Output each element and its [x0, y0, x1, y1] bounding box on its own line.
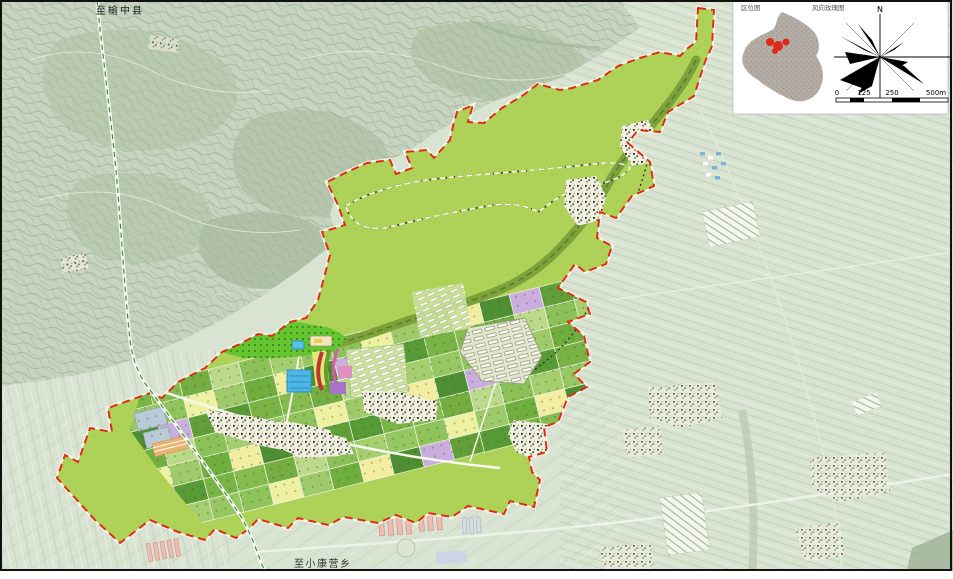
windrose-title: 风向玫瑰图: [812, 3, 845, 12]
greenhouse-block: [346, 344, 409, 398]
scale-tick-500: 500m: [926, 89, 946, 97]
shed-rows-c: [462, 517, 481, 534]
map-canvas: 至榆中县 至小康营乡 区位图 风向玫瑰图 N: [0, 0, 953, 579]
greenhouse-block: [412, 283, 471, 337]
inset-panel: 区位图 风向玫瑰图 N: [733, 1, 950, 114]
north-label: N: [877, 5, 883, 14]
planning-map: 至榆中县 至小康营乡 区位图 风向玫瑰图 N: [0, 0, 953, 579]
location-map-title: 区位图: [741, 3, 761, 12]
scale-tick-250: 250: [885, 89, 898, 97]
hamlet-cluster: [622, 426, 664, 458]
scale-tick-0: 0: [835, 89, 839, 97]
scale-tick-125: 125: [857, 89, 870, 97]
tan-building: [310, 336, 332, 346]
south-road-label: 至小康营乡: [294, 557, 352, 570]
greenhouse-hatch-block: [660, 492, 710, 555]
north-road-label: 至榆中县: [96, 4, 144, 17]
lavender-plot: [436, 550, 467, 564]
bottom-margin: [0, 571, 953, 579]
round-field: [397, 539, 415, 557]
